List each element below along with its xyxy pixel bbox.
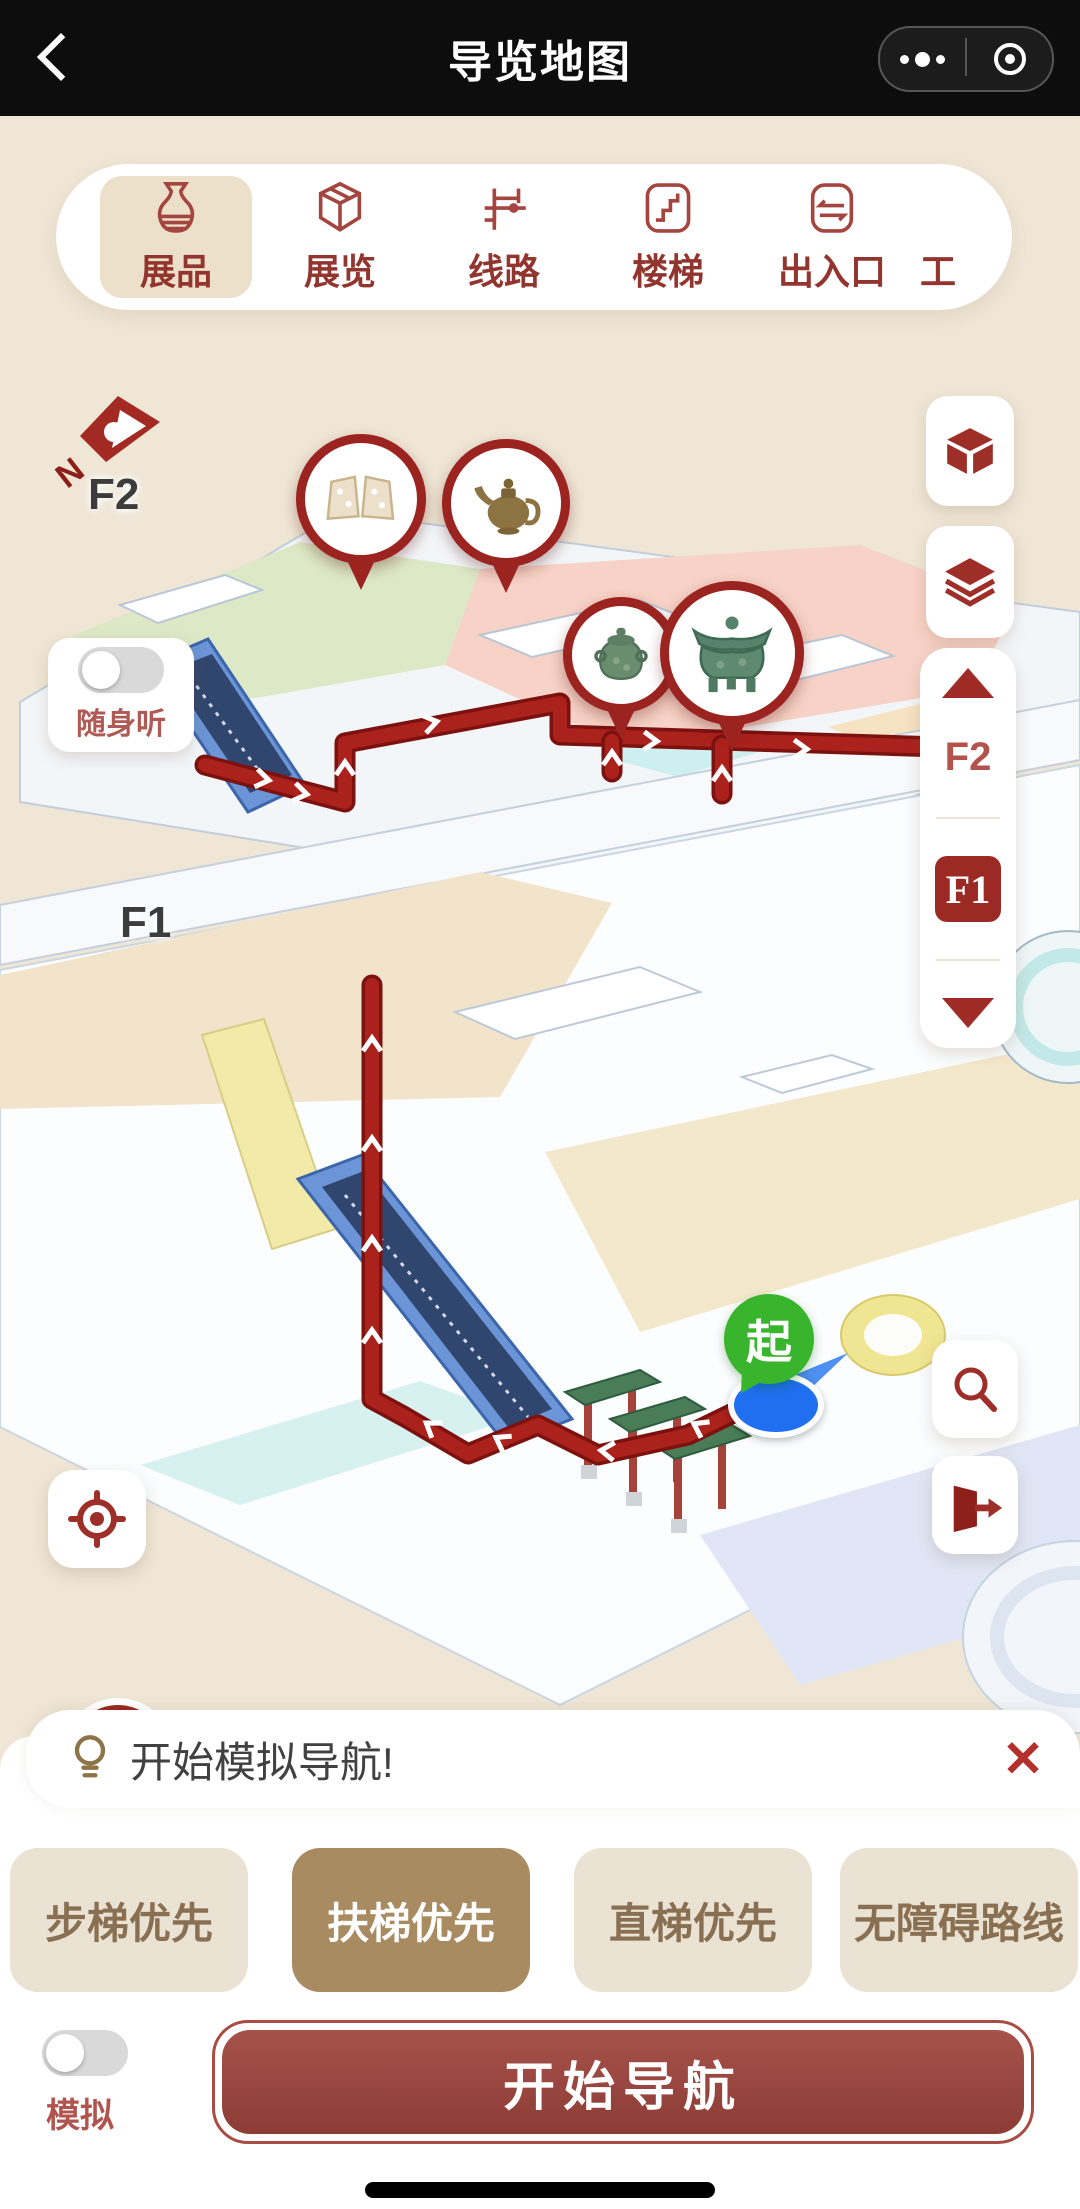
tab-stairs[interactable]: 楼梯 (592, 176, 744, 298)
tab-label: 出入口 (778, 243, 886, 295)
option-accessible-route[interactable]: 无障碍路线 (840, 1848, 1078, 1992)
floor-down-icon[interactable] (942, 998, 994, 1028)
nav-header: 导览地图 (0, 0, 1080, 116)
floor-option-f2[interactable]: F2 (945, 735, 992, 780)
tab-exhibitions[interactable]: 展览 (264, 176, 416, 298)
audio-guide-label: 随身听 (76, 699, 166, 743)
indoor-map[interactable] (0, 116, 1080, 1796)
start-navigation-label: 开始导航 (222, 2030, 1024, 2134)
miniprogram-capsule (878, 26, 1054, 92)
locate-crosshair-icon (68, 1490, 126, 1548)
tab-entrances[interactable]: 出入口 (756, 176, 908, 298)
tab-clipped[interactable]: 工 (920, 176, 1012, 298)
tab-label: 工 (920, 243, 956, 295)
route-path-icon (477, 179, 531, 237)
option-escalator-first[interactable]: 扶梯优先 (292, 1848, 530, 1992)
cube-3d-icon (942, 423, 998, 479)
exhibit-pin-bronze-vessel[interactable] (660, 581, 804, 725)
bronze-teapot-icon (467, 468, 545, 538)
tip-bar: 开始模拟导航! ✕ (26, 1710, 1080, 1808)
search-button[interactable] (932, 1340, 1018, 1438)
ellipsis-icon (900, 52, 945, 67)
close-icon[interactable]: ✕ (1002, 1734, 1044, 1784)
entrance-exit-icon (805, 179, 859, 237)
floor-option-f1-selected[interactable]: F1 (935, 856, 1001, 922)
simulate-toggle[interactable] (42, 2030, 128, 2076)
tip-text: 开始模拟导航! (130, 1729, 1002, 1790)
layers-icon (942, 554, 998, 610)
bronze-jar-icon (589, 622, 653, 688)
close-capsule-button[interactable] (967, 28, 1052, 90)
route-preference-group: 步梯优先 扶梯优先 直梯优先 无障碍路线 (0, 1848, 1080, 1994)
tab-exhibits[interactable]: 展品 (100, 176, 252, 298)
floor-label-f1: F1 (120, 898, 171, 948)
jade-plaques-icon (321, 467, 401, 531)
tab-label: 楼梯 (632, 243, 704, 295)
bronze-gui-vessel-icon (686, 610, 778, 696)
start-navigation-button[interactable]: 开始导航 (212, 2020, 1034, 2144)
exit-door-icon (946, 1478, 1004, 1532)
option-stairs-first[interactable]: 步梯优先 (10, 1848, 248, 1992)
audio-guide-toggle[interactable] (78, 647, 164, 693)
view-3d-button[interactable] (926, 396, 1014, 506)
navigation-bottom-sheet: 开始模拟导航! ✕ 步梯优先 扶梯优先 直梯优先 无障碍路线 模拟 开始导航 (0, 1736, 1080, 2209)
tab-routes[interactable]: 线路 (428, 176, 580, 298)
exit-button[interactable] (932, 1456, 1018, 1554)
stairs-icon (641, 179, 695, 237)
floor-selector[interactable]: F2 F1 (920, 648, 1016, 1048)
exhibition-box-icon (313, 179, 367, 237)
search-icon (948, 1362, 1002, 1416)
simulate-control: 模拟 (42, 2030, 138, 2137)
vase-icon (149, 179, 203, 237)
exhibit-pin-teapot[interactable] (442, 439, 570, 567)
locate-button[interactable] (48, 1470, 146, 1568)
layers-button[interactable] (926, 526, 1014, 638)
floor-label-f2: F2 (88, 470, 139, 520)
route-start-marker[interactable]: 起 (724, 1294, 814, 1384)
tab-label: 展品 (140, 243, 212, 295)
clipped-icon (920, 179, 974, 237)
app-screen: N F2 F1 随身听 (0, 0, 1080, 2209)
audio-guide-card[interactable]: 随身听 (48, 638, 194, 752)
lightbulb-icon (70, 1733, 110, 1785)
more-menu-button[interactable] (880, 28, 965, 90)
option-elevator-first[interactable]: 直梯优先 (574, 1848, 812, 1992)
simulate-label: 模拟 (46, 2088, 114, 2137)
tab-label: 线路 (468, 243, 540, 295)
floor-up-icon[interactable] (942, 668, 994, 698)
target-circle-icon (994, 43, 1026, 75)
exhibit-pin-jade[interactable] (296, 434, 426, 564)
home-indicator (365, 2182, 715, 2198)
category-tabbar: 展品 展览 线路 楼梯 (56, 164, 1012, 310)
tab-label: 展览 (304, 243, 376, 295)
